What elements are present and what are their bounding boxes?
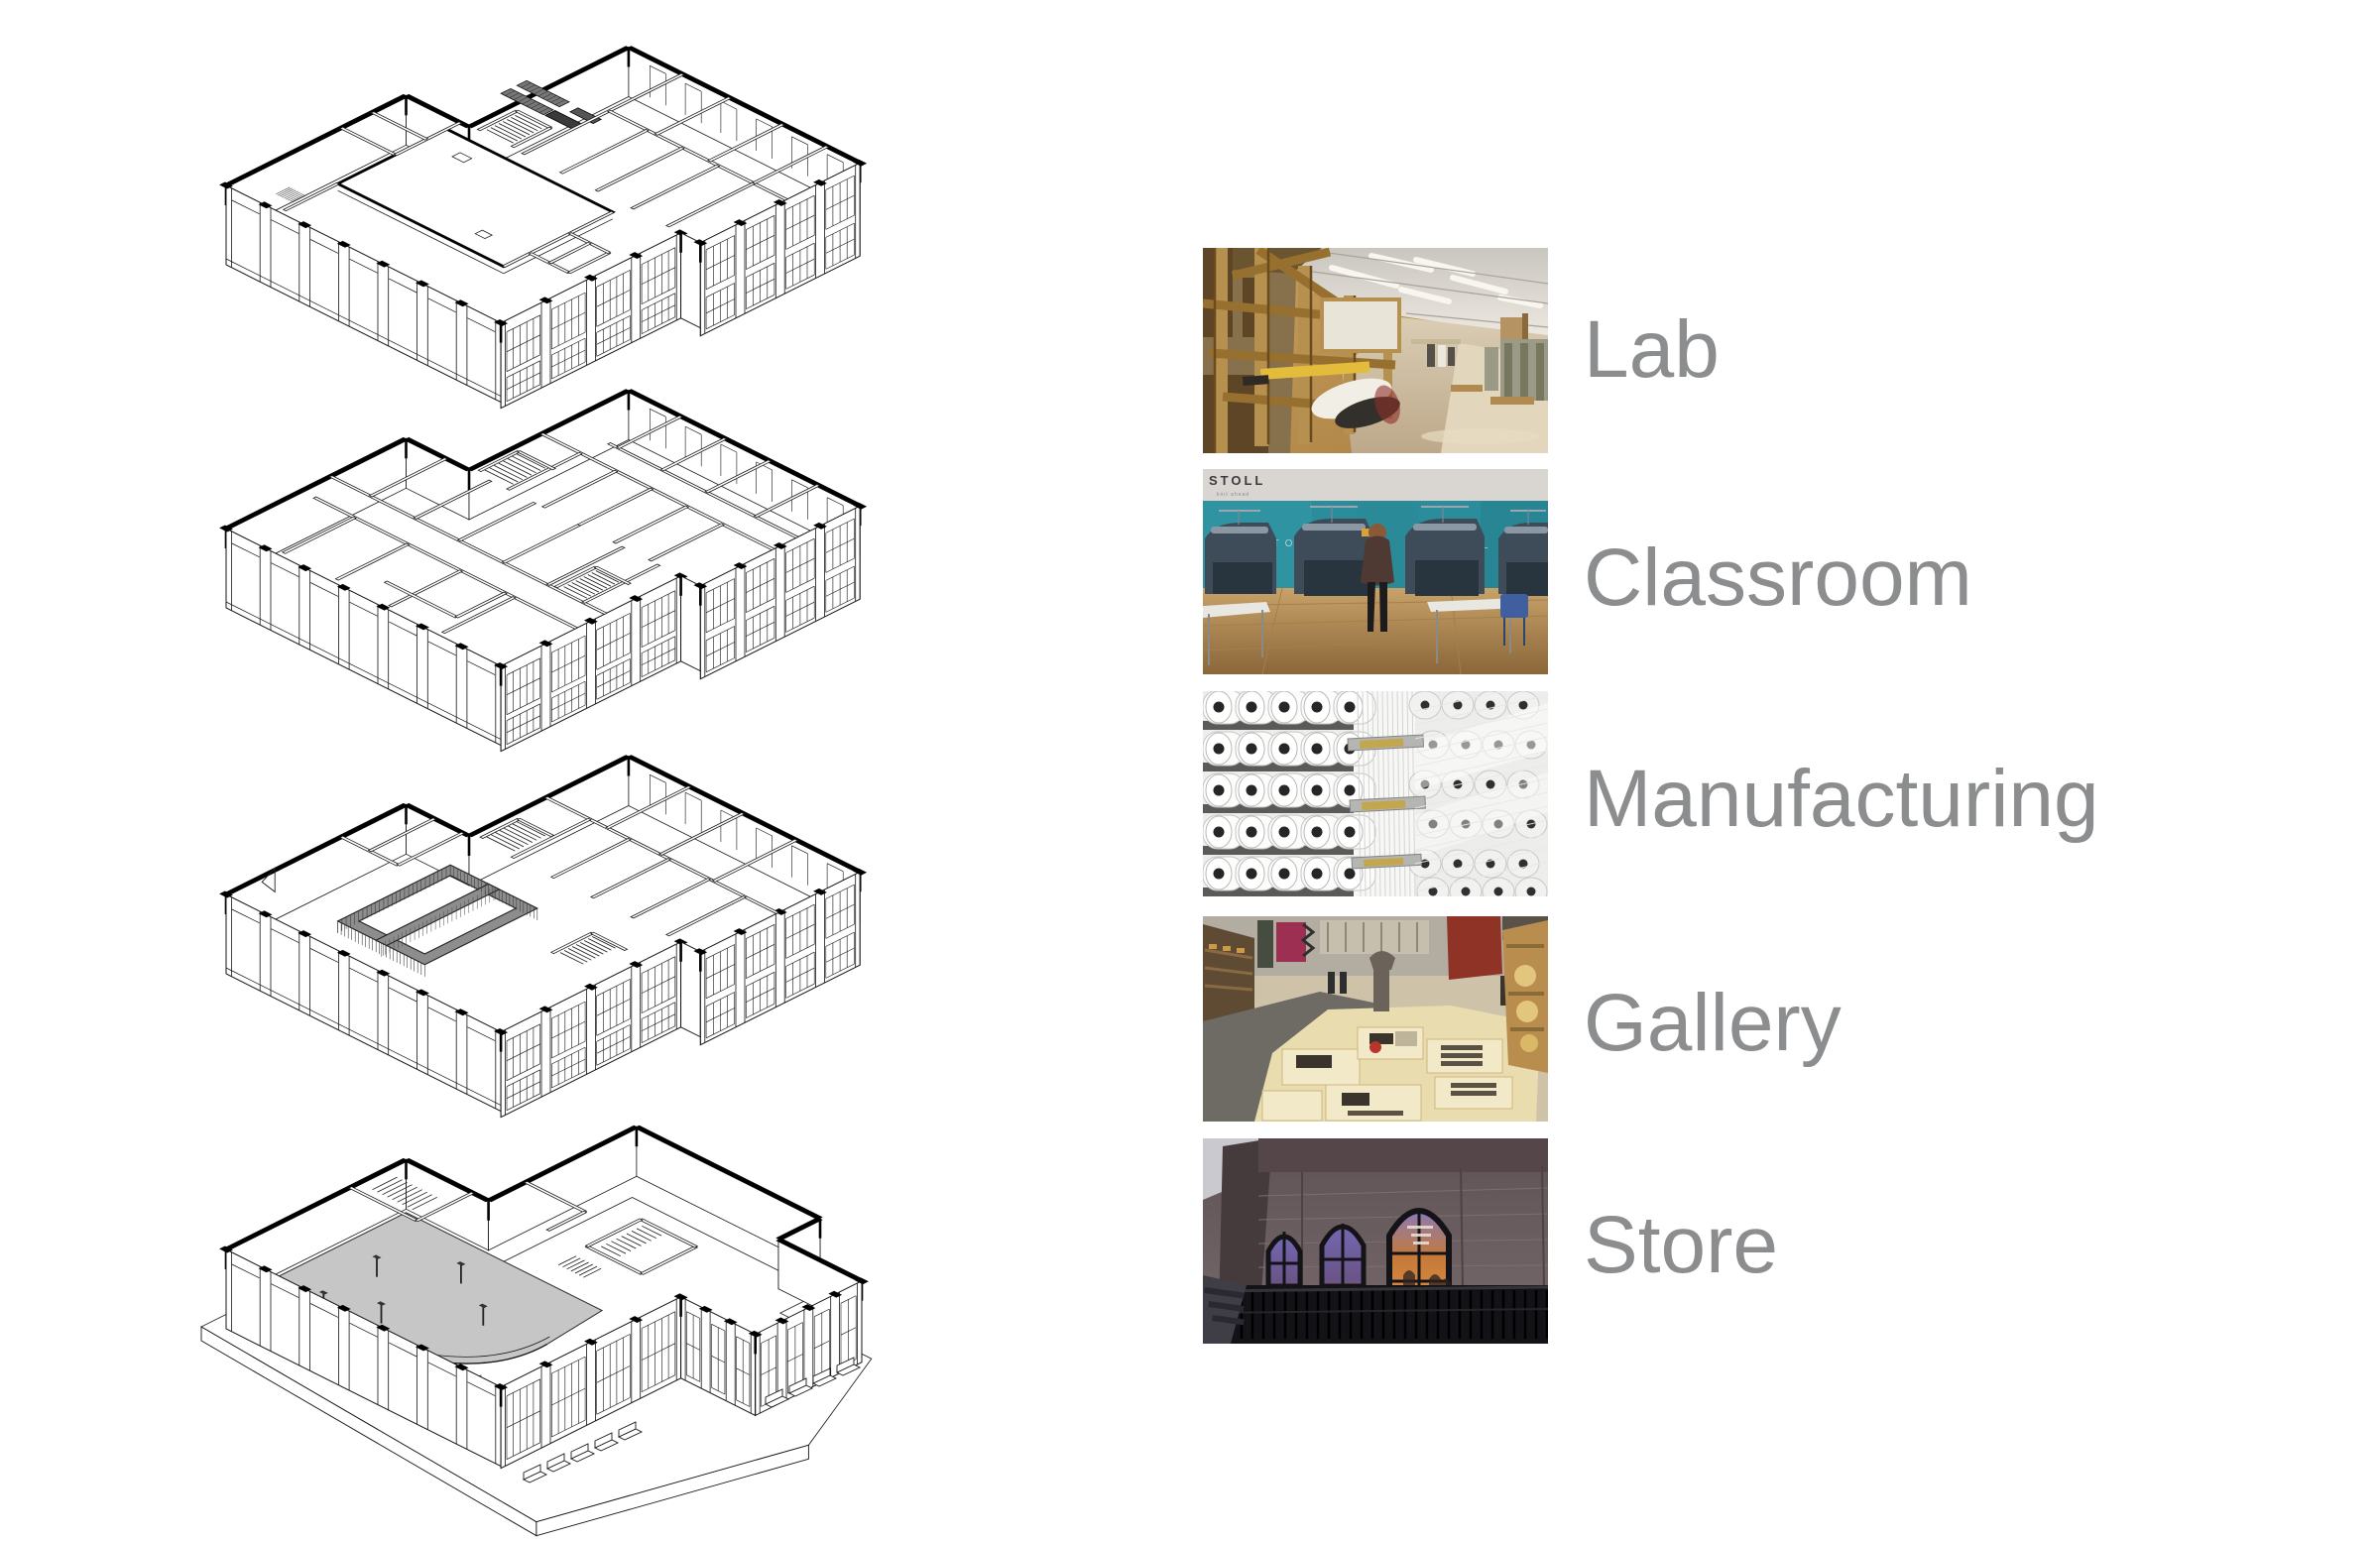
svg-text:knit ahead: knit ahead: [1217, 492, 1249, 498]
svg-text:STOLL: STOLL: [1209, 473, 1265, 488]
